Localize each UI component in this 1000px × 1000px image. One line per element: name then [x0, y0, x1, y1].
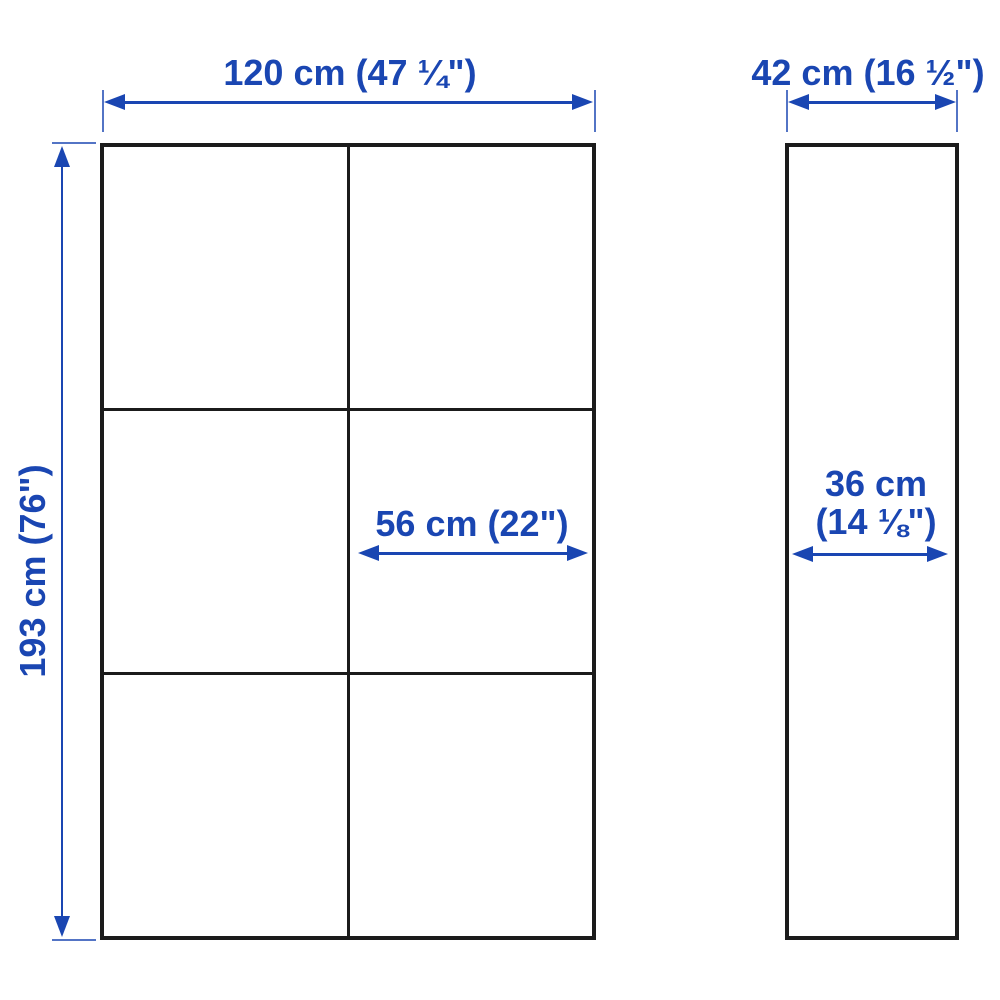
front-height-extension-line-top — [52, 142, 96, 144]
arrowhead-right-icon — [935, 94, 956, 110]
section-width-dimension-label: 56 cm (22") — [322, 504, 622, 544]
arrowhead-right-icon — [572, 94, 593, 110]
dimension-line — [372, 552, 574, 555]
front-height-extension-line-bottom — [52, 939, 96, 941]
side-inner-depth-dimension-label: 36 cm (14 ⅛") — [776, 465, 976, 541]
arrowhead-right-icon — [927, 546, 948, 562]
side-inner-depth-line1: 36 cm — [825, 463, 927, 504]
dimension-diagram: 120 cm (47 ¼") 42 cm (16 ½") 193 cm (76"… — [0, 0, 1000, 1000]
side-depth-dimension-label: 42 cm (16 ½") — [668, 53, 1000, 93]
dimension-line — [118, 101, 579, 104]
dimension-line — [806, 553, 934, 556]
front-view-shelf-divider-1 — [100, 408, 596, 411]
dimension-line — [61, 160, 64, 923]
front-width-dimension-label: 120 cm (47 ¼") — [150, 53, 550, 93]
front-width-extension-line-right — [594, 90, 596, 132]
front-view-shelf-divider-2 — [100, 672, 596, 675]
front-height-dimension-label: 193 cm (76") — [13, 371, 53, 771]
side-inner-depth-line2: (14 ⅛") — [815, 501, 936, 542]
side-depth-extension-line-right — [956, 90, 958, 132]
dimension-line — [802, 101, 942, 104]
arrowhead-down-icon — [54, 916, 70, 937]
arrowhead-right-icon — [567, 545, 588, 561]
